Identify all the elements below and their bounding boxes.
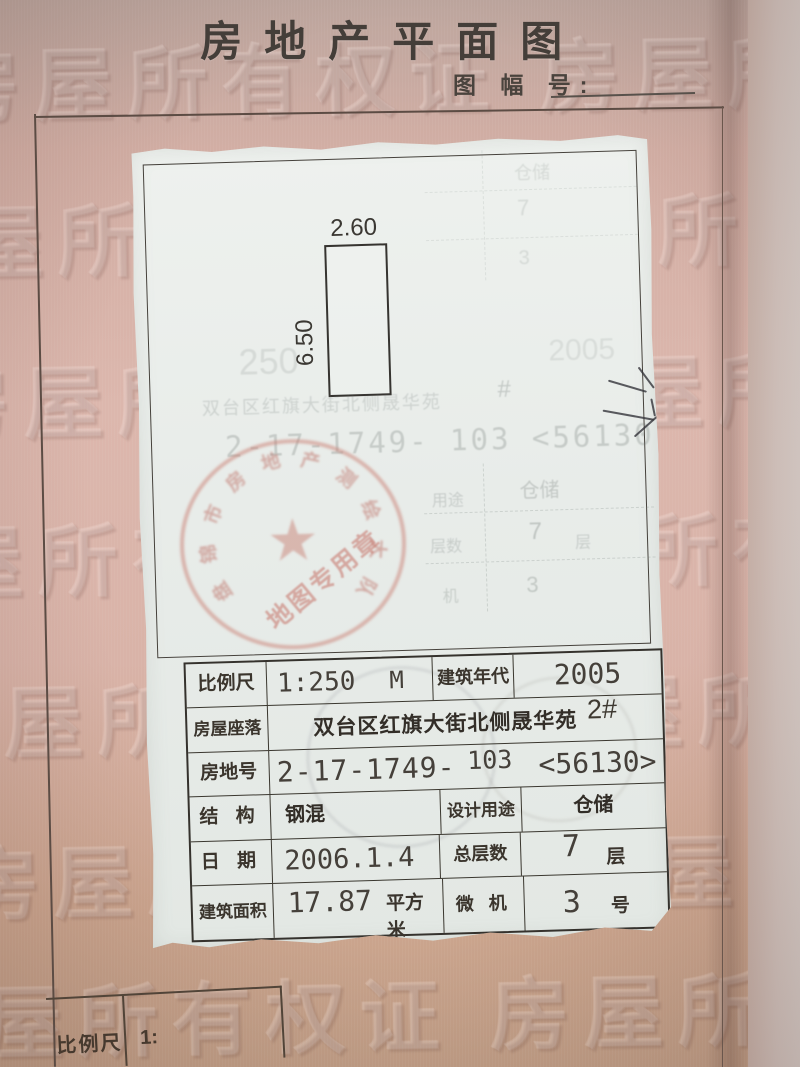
ghost-scale-text: 250 xyxy=(238,340,299,384)
ghost-floors-unit: 层 xyxy=(575,528,592,552)
bottom-scale-table: 比例尺 1: xyxy=(46,986,285,1067)
ghost-line xyxy=(481,150,486,280)
page-right-edge xyxy=(748,0,800,1067)
parcel-suffix: 103 xyxy=(467,745,513,775)
build-year-value: 2005 xyxy=(553,657,621,692)
scale-value: 1:250 M xyxy=(267,657,434,705)
bottom-scale-label: 比例尺 xyxy=(56,1026,123,1058)
structure-text: 钢混 xyxy=(285,798,326,828)
surveyor-stamp: 盘锦市房地产测绘大队 ★ 地图专用章 xyxy=(177,436,409,653)
computer-label: 微 机 xyxy=(443,877,526,933)
ghost-hash-text: # xyxy=(497,376,511,404)
ghost-line xyxy=(426,556,656,564)
ghost-use-text: 仓储 xyxy=(519,473,560,503)
total-floors-label: 总层数 xyxy=(440,832,522,878)
pen-mark xyxy=(650,398,656,416)
date-value: 2006.1.4 xyxy=(284,842,415,877)
page-frame-right xyxy=(722,106,723,1067)
ghost-machine-label: 机 xyxy=(442,582,459,606)
area-unit: 平方米 xyxy=(386,887,444,943)
ghost-table-top: 仓储 7 3 xyxy=(423,146,639,282)
design-use-value: 仓储 xyxy=(573,788,614,818)
ghost-table-middle: 用途 仓储 层数 7 层 机 3 xyxy=(423,458,657,613)
total-floors-unit: 层 xyxy=(606,841,626,869)
ghost-floors-text: 7 xyxy=(528,518,542,546)
ghost-floors-text: 7 xyxy=(517,195,530,221)
address-text: 双台区红旗大街北侧晟华苑 xyxy=(313,704,578,742)
bottom-scale-value: 1: xyxy=(140,1026,159,1050)
total-floors-value: 7 xyxy=(562,829,581,865)
ghost-machine-text: 3 xyxy=(526,572,539,598)
parcel-number: 2-17-1749- xyxy=(276,750,455,788)
scale-number: 1:250 xyxy=(277,666,356,698)
info-table: 比例尺 1:250 M 建筑年代 2005 房屋座落 双台区红旗大街北侧晟华苑 … xyxy=(183,648,670,942)
area-label: 建筑面积 xyxy=(192,884,275,940)
page-fold-crease xyxy=(706,0,750,1067)
ghost-line xyxy=(426,234,638,241)
area-value: 17.87 xyxy=(287,884,372,919)
computer-value: 3 xyxy=(562,884,581,920)
document-photo: 房屋所有权证 房屋所有权证 房屋所有权证 房屋所有权证 房屋所有权证 房屋所有权… xyxy=(0,0,800,1067)
design-use-label: 设计用途 xyxy=(440,788,522,834)
bottom-scale-divider xyxy=(122,996,128,1066)
structure-value: 钢混 xyxy=(270,790,441,838)
plan-outline-rect xyxy=(324,243,391,397)
scale-unit: M xyxy=(389,666,404,694)
build-year-label: 建筑年代 xyxy=(432,655,514,701)
address-label: 房屋座落 xyxy=(187,706,269,752)
ghost-floors-label: 层数 xyxy=(430,532,463,557)
address-note: 2# xyxy=(587,693,618,725)
parcel-label: 房地号 xyxy=(188,751,270,797)
scale-label: 比例尺 xyxy=(186,662,268,708)
ghost-line xyxy=(425,186,637,193)
ghost-year-text: 2005 xyxy=(548,333,616,369)
ghost-line xyxy=(483,463,488,611)
structure-label: 结 构 xyxy=(189,795,271,841)
page-title: 房地产平面图 xyxy=(200,8,584,69)
plan-sticker: 2.60 6.50 250 2005 双台区红旗大街北侧晟华苑 # 2-17-1… xyxy=(128,133,673,950)
ghost-use-label: 用途 xyxy=(431,486,464,511)
dimension-width-label: 2.60 xyxy=(318,213,389,243)
ghost-unit-text: 3 xyxy=(518,247,530,270)
computer-unit: 号 xyxy=(610,890,630,918)
date-label: 日 期 xyxy=(191,840,273,886)
ghost-use-text: 仓储 xyxy=(514,158,551,185)
parcel-code: <56130> xyxy=(538,745,657,781)
